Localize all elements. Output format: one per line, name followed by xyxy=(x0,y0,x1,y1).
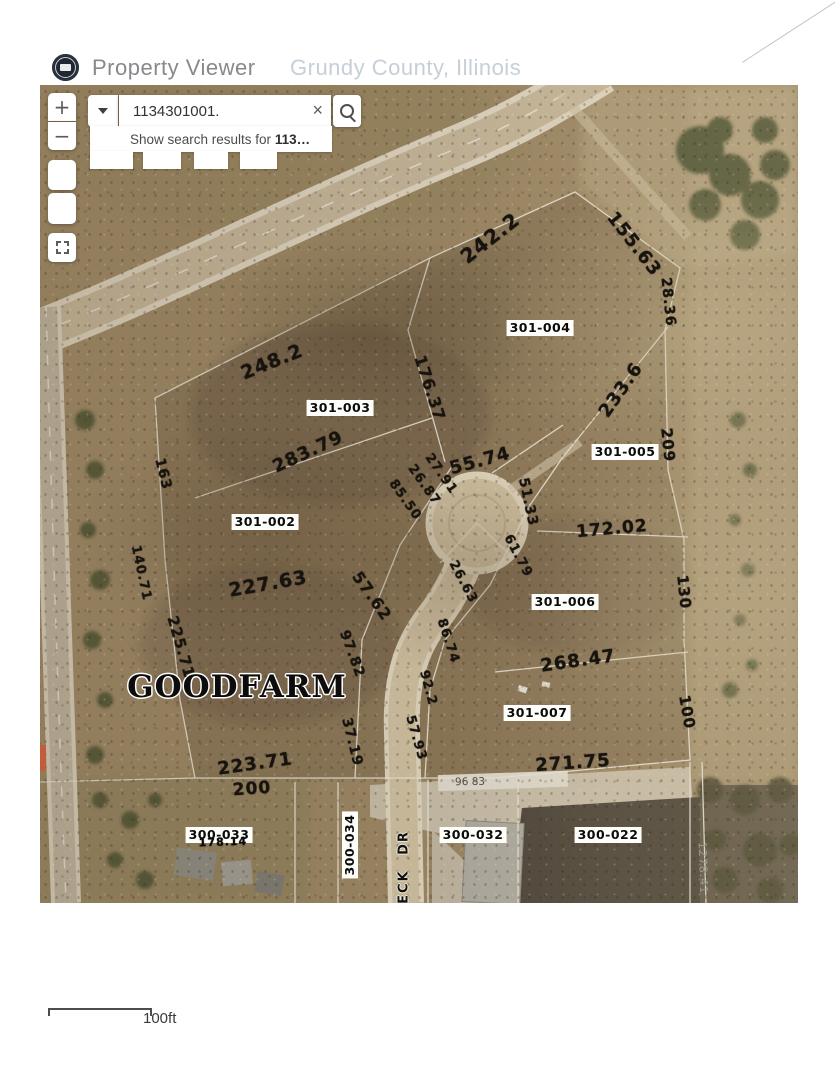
parcel-id-label: 301-003 xyxy=(307,400,374,416)
county-subtitle: Grundy County, Illinois xyxy=(290,55,521,81)
search-suggestion-item[interactable]: Show search results for 113… xyxy=(90,126,332,152)
scanned-page: { "header": { "app_title": "Property Vie… xyxy=(0,0,835,1080)
scale-label: 100ft xyxy=(143,1010,176,1027)
suggestion-fragment-4 xyxy=(240,151,277,169)
suggestion-fragment-3 xyxy=(194,151,228,169)
toolbar-button-blank-1[interactable] xyxy=(48,160,76,190)
parcel-id-label: 300-034 xyxy=(342,812,358,879)
parcel-id-label: 301-002 xyxy=(232,514,299,530)
search-button[interactable] xyxy=(333,95,361,127)
minus-icon: − xyxy=(54,124,71,148)
parcel-id-label: 301-006 xyxy=(532,594,599,610)
zoom-in-button[interactable]: + xyxy=(48,93,76,121)
scale-bar xyxy=(48,1008,152,1016)
survey-dimension: 96 83 xyxy=(455,776,485,789)
measurement-label: 209 xyxy=(657,427,678,463)
plus-icon: + xyxy=(54,95,71,119)
suggestion-fragment-2 xyxy=(143,151,181,169)
search-field-wrap: × xyxy=(119,95,331,127)
clear-search-icon[interactable]: × xyxy=(312,99,323,121)
app-title: Property Viewer xyxy=(92,55,256,81)
parcel-id-label: 300-022 xyxy=(575,827,642,843)
suggestion-text: Show search results for 113… xyxy=(130,132,310,147)
scan-corner-artifact xyxy=(742,1,835,63)
parcel-id-label: 301-005 xyxy=(592,444,659,460)
suggestion-fragment-1 xyxy=(90,151,133,169)
corner-brackets-icon xyxy=(56,241,69,254)
seal-glyph xyxy=(60,64,71,71)
street-label: ECK DR xyxy=(397,830,412,903)
magnifier-icon xyxy=(340,104,354,118)
measurement-label: 130 xyxy=(673,574,694,610)
place-label-goodfarm: GOODFARM xyxy=(127,669,347,705)
measurement-label: 200 xyxy=(232,778,272,801)
red-edge-mark xyxy=(40,745,46,771)
parcel-id-label: 300-032 xyxy=(440,827,507,843)
app-header: Property Viewer Grundy County, Illinois xyxy=(0,0,835,85)
map-canvas[interactable]: GOODFARM ECK DR 96 83 1278.41 242.2155.6… xyxy=(40,85,798,903)
chevron-down-icon xyxy=(98,108,108,114)
county-seal-icon xyxy=(52,54,79,81)
default-extent-button[interactable] xyxy=(48,233,76,262)
edge-dimension: 1278.41 xyxy=(696,842,711,895)
parcel-id-label: 301-004 xyxy=(507,320,574,336)
toolbar-button-blank-2[interactable] xyxy=(48,193,76,224)
zoom-out-button[interactable]: − xyxy=(48,122,76,150)
aerial-terrain xyxy=(40,85,798,903)
overlapping-dimension-label: 178.14 xyxy=(199,835,248,850)
search-input[interactable] xyxy=(131,102,295,121)
search-source-dropdown[interactable] xyxy=(88,95,118,127)
parcel-id-label: 301-007 xyxy=(504,705,571,721)
